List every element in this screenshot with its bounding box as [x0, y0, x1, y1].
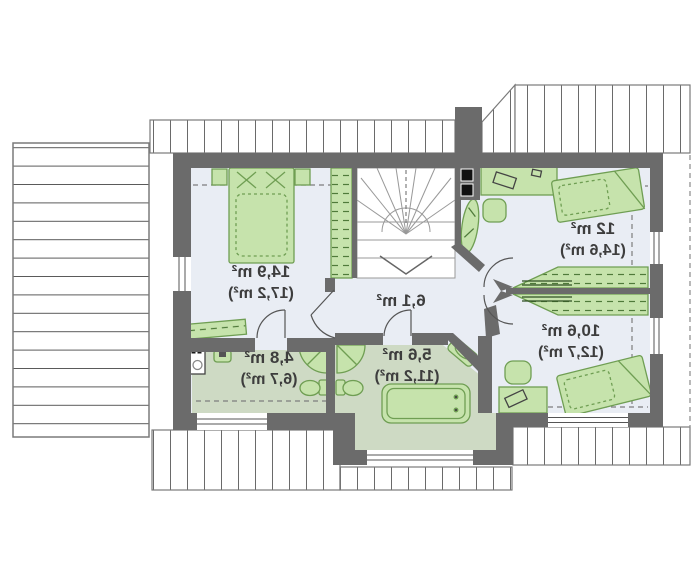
- room-area-label-bedroom-left: 14,9 m² (17,2 m²): [228, 261, 294, 305]
- left-roof-hatch: [13, 143, 149, 437]
- room-area: 4,8 m²: [241, 347, 298, 369]
- top-roof-hatch: [150, 85, 690, 153]
- room-area: 5,6 m²: [375, 344, 440, 366]
- room-area-label-ensuite: 4,8 m² (6,7 m²): [241, 347, 298, 391]
- floor-plan-page: 14,9 m² (17,2 m²) 6,1 m² 12 m² (14,6 m²)…: [0, 0, 700, 575]
- room-area-label-bedroom-top-right: 12 m² (14,6 m²): [560, 218, 626, 262]
- room-area-gross: (6,7 m²): [241, 369, 298, 391]
- room-area-gross: (12,7 m²): [538, 342, 604, 364]
- desk: [481, 167, 557, 195]
- toilet: [300, 380, 328, 396]
- chair: [483, 199, 506, 222]
- desk: [499, 387, 547, 413]
- double-bed: [229, 168, 294, 263]
- room-area: 12 m²: [560, 218, 626, 240]
- room-area: 14,9 m²: [228, 261, 294, 283]
- room-area-label-bathroom: 5,6 m² (11,2 m²): [375, 344, 440, 388]
- staircase: [357, 168, 455, 278]
- room-area-gross: (14,6 m²): [560, 240, 626, 262]
- window: [197, 413, 267, 430]
- window: [650, 232, 663, 264]
- wardrobe: [331, 168, 352, 278]
- room-area-gross: (17,2 m²): [228, 283, 294, 305]
- toilet: [336, 380, 363, 396]
- window: [650, 318, 663, 354]
- window: [173, 257, 191, 291]
- nightstand: [295, 169, 310, 185]
- bathtub: [382, 384, 470, 423]
- room-area-label-hall: 6,1 m²: [376, 290, 425, 312]
- window: [548, 413, 628, 427]
- room-area: 10,6 m²: [538, 320, 604, 342]
- chair: [505, 361, 531, 384]
- nightstand: [212, 169, 227, 185]
- floor-plan-drawing: [0, 0, 700, 575]
- room-area: 6,1 m²: [376, 290, 425, 312]
- room-area-gross: (11,2 m²): [375, 366, 440, 388]
- window: [367, 450, 473, 465]
- room-area-label-bedroom-bottom-right: 10,6 m² (12,7 m²): [538, 320, 604, 364]
